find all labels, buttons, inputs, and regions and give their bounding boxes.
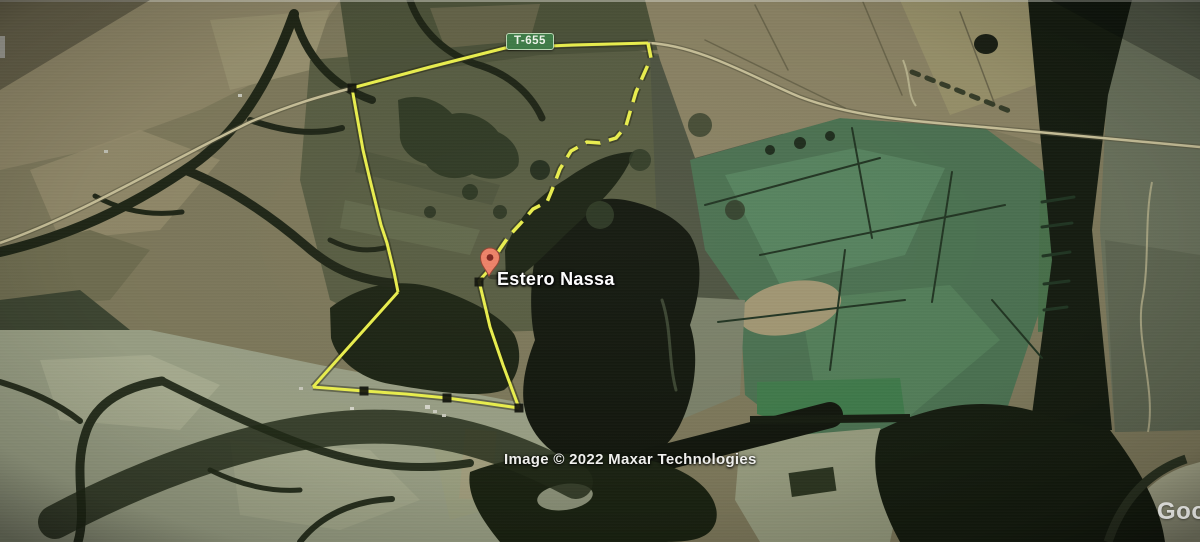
boundary-vertex-handle[interactable]: [348, 84, 357, 93]
boundary-overlay: [0, 0, 1200, 542]
parcel-boundary: [313, 43, 651, 413]
boundary-vertex-handle[interactable]: [475, 278, 484, 287]
boundary-vertex-handle[interactable]: [443, 394, 452, 403]
boundary-vertex-handle[interactable]: [360, 387, 369, 396]
boundary-line-shadow: [479, 264, 519, 408]
boundary-line-solid: [313, 292, 398, 387]
satellite-map-canvas[interactable]: T-655 Estero Nassa Image © 2022 Maxar Te…: [0, 0, 1200, 542]
boundary-line-dashed: [494, 43, 651, 259]
screenshot-root: { "map": { "road_sign_label": "T-655", "…: [0, 0, 1200, 542]
boundary-vertex-handle[interactable]: [515, 404, 524, 413]
boundary-line-solid: [352, 43, 648, 88]
road-shield-t655: T-655: [506, 33, 554, 50]
